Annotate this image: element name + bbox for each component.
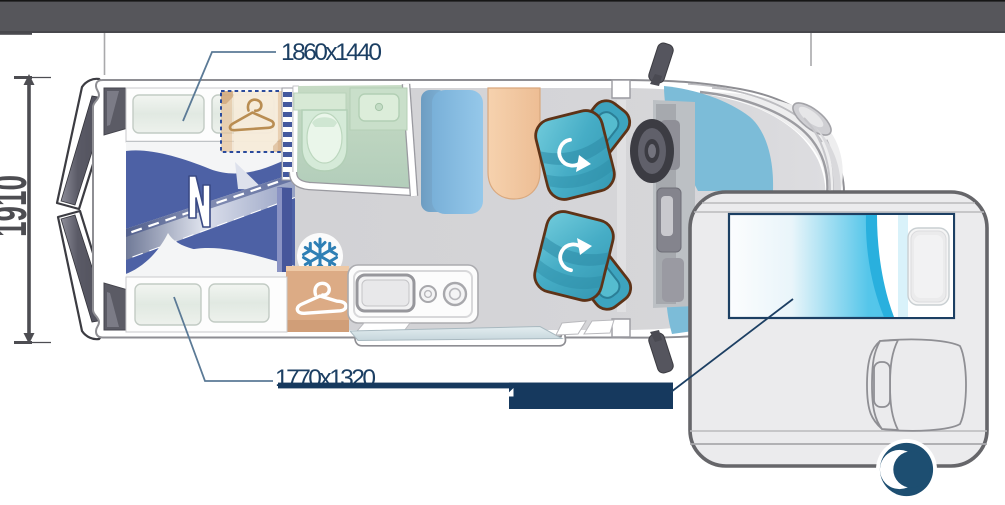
svg-text:1860x1440: 1860x1440	[281, 39, 382, 66]
svg-text:1910: 1910	[0, 175, 37, 237]
